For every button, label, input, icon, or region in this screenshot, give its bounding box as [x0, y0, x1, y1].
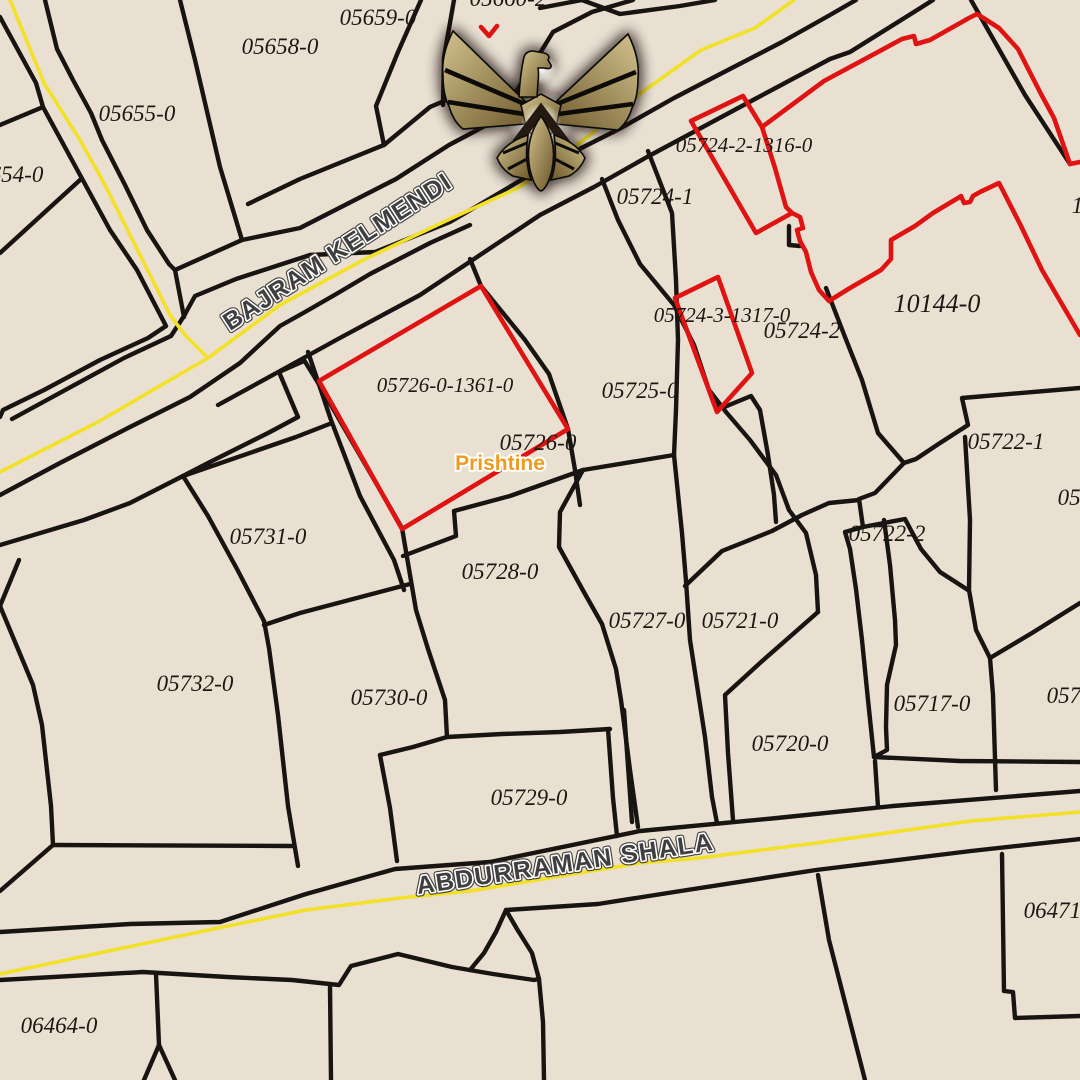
svg-text:10144-0: 10144-0 [894, 289, 981, 318]
svg-text:05724-1: 05724-1 [617, 184, 694, 209]
svg-text:05731-0: 05731-0 [230, 524, 307, 549]
svg-text:05725-0: 05725-0 [602, 378, 679, 403]
svg-text:06464-0: 06464-0 [21, 1013, 98, 1038]
svg-text:05654-0: 05654-0 [0, 162, 44, 187]
svg-text:05722-2: 05722-2 [849, 521, 926, 546]
svg-text:05720-0: 05720-0 [752, 731, 829, 756]
svg-text:05718-0: 05718-0 [1047, 683, 1080, 708]
svg-text:05728-0: 05728-0 [462, 559, 539, 584]
svg-text:05729-0: 05729-0 [491, 785, 568, 810]
svg-text:05660-2: 05660-2 [470, 0, 547, 11]
svg-text:05722-1: 05722-1 [968, 429, 1045, 454]
svg-text:05721-0: 05721-0 [702, 608, 779, 633]
svg-text:10144-2: 10144-2 [1072, 193, 1080, 218]
svg-text:05655-0: 05655-0 [99, 101, 176, 126]
svg-text:05724-2: 05724-2 [764, 318, 841, 343]
svg-text:05727-0: 05727-0 [609, 608, 686, 633]
svg-text:05726-0-1361-0: 05726-0-1361-0 [377, 373, 514, 397]
svg-text:05658-0: 05658-0 [242, 34, 319, 59]
svg-text:05732-0: 05732-0 [157, 671, 234, 696]
svg-text:05724-2-1316-0: 05724-2-1316-0 [676, 133, 813, 157]
svg-text:05659-0: 05659-0 [340, 5, 417, 30]
svg-text:05730-0: 05730-0 [351, 685, 428, 710]
svg-text:05718-0: 05718-0 [1058, 485, 1080, 510]
svg-text:05717-0: 05717-0 [894, 691, 971, 716]
svg-text:Prishtine: Prishtine [455, 452, 545, 475]
svg-text:06471-0: 06471-0 [1024, 898, 1080, 923]
